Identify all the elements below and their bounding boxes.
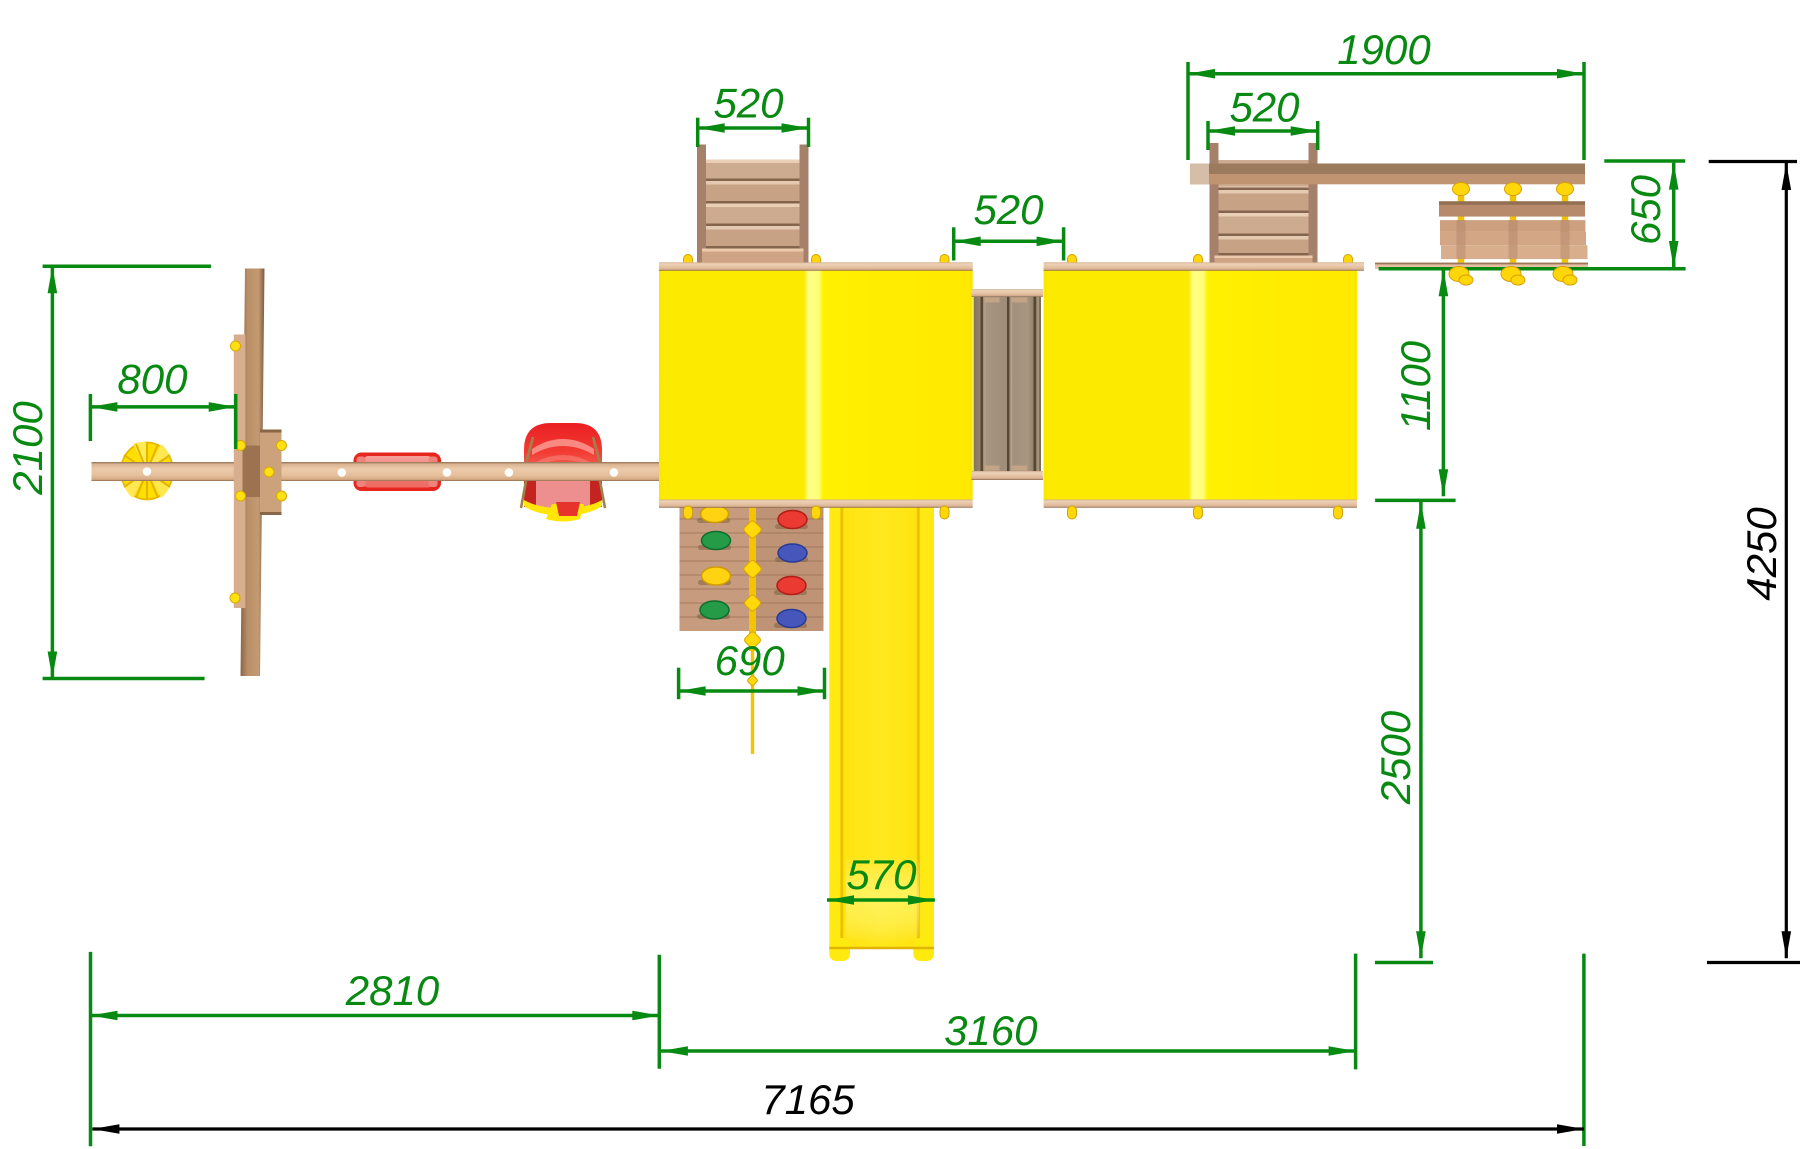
svg-text:800: 800 bbox=[117, 356, 188, 403]
svg-text:2500: 2500 bbox=[1372, 710, 1419, 805]
svg-text:690: 690 bbox=[715, 637, 786, 684]
svg-text:2100: 2100 bbox=[4, 401, 51, 496]
svg-text:7165: 7165 bbox=[761, 1076, 855, 1123]
svg-text:650: 650 bbox=[1622, 174, 1669, 245]
svg-text:1100: 1100 bbox=[1392, 340, 1439, 431]
svg-text:3160: 3160 bbox=[944, 1007, 1038, 1054]
svg-text:2810: 2810 bbox=[345, 967, 440, 1014]
svg-text:4250: 4250 bbox=[1738, 507, 1785, 601]
svg-text:520: 520 bbox=[973, 186, 1044, 233]
svg-text:520: 520 bbox=[1229, 84, 1300, 131]
svg-text:1900: 1900 bbox=[1337, 26, 1431, 73]
svg-text:520: 520 bbox=[713, 80, 784, 127]
svg-text:570: 570 bbox=[846, 851, 917, 898]
